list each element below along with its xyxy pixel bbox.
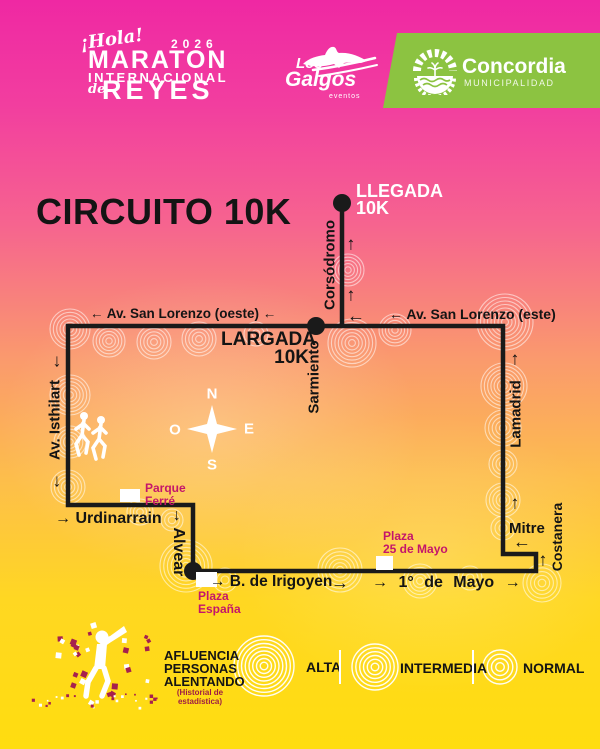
poi-25mayo-line1: Plaza: [383, 530, 448, 543]
poi-square: [120, 489, 140, 502]
direction-arrow: →: [331, 573, 349, 594]
concordia-emblem-icon: [412, 49, 458, 95]
legend-divider-2: [472, 650, 474, 684]
street-san-lorenzo-oeste: ← Av. San Lorenzo (oeste) ←: [90, 306, 276, 321]
legend-subtitle: (Historial de estadística): [164, 688, 236, 706]
street-costanera: Costanera: [549, 503, 565, 571]
concordia-municipalidad-text: MUNICIPALIDAD: [464, 78, 555, 88]
largada-10k-label: 10K: [221, 348, 309, 367]
legend-ripple-normal: [483, 650, 517, 684]
poi-espana-line1: Plaza: [198, 590, 241, 603]
street-alvear: → Alvear: [169, 508, 187, 577]
direction-arrow: ↓: [53, 471, 62, 492]
street-urdinarrain: → Urdinarrain: [55, 510, 162, 528]
direction-arrow: ←: [513, 532, 531, 553]
compass-n: N: [207, 386, 218, 403]
route-dot: [333, 194, 351, 212]
compass-e: E: [244, 421, 254, 438]
legend-label-normal: NORMAL: [523, 660, 584, 676]
crowd-ripple: [137, 325, 171, 359]
poi-plaza-25-mayo: Plaza 25 de Mayo: [383, 530, 448, 556]
direction-arrow: ↑: [347, 285, 356, 306]
llegada-10k-label: 10K: [356, 199, 389, 217]
direction-arrow: ↑: [511, 493, 520, 514]
compass-s: S: [207, 457, 217, 474]
street-isthilart: Av. Isthilart: [47, 380, 64, 460]
crowd-ripple: [93, 325, 125, 357]
poi-parque-line1: Parque: [145, 482, 186, 495]
legend-divider-1: [339, 650, 341, 684]
street-sarmiento: Sarmiento: [306, 340, 323, 413]
poi-plaza-espana: Plaza España: [198, 590, 241, 616]
galgos-eventos-text: eventos: [329, 93, 361, 100]
legend-label-alta: ALTA: [306, 659, 341, 675]
legend-ripple-intermedia: [352, 644, 398, 690]
concordia-name-text: Concordia: [462, 55, 566, 79]
circuit-title: CIRCUITO 10K: [36, 191, 291, 233]
legend-title-line3: ALENTANDO: [164, 675, 245, 688]
runners-icon: [72, 410, 132, 470]
direction-arrow: ↑: [539, 550, 548, 571]
direction-arrow: ↓: [53, 351, 62, 372]
legend-title: AFLUENCIA PERSONAS ALENTANDO (Historial …: [164, 649, 245, 706]
street-san-lorenzo-este: ← Av. San Lorenzo (este): [389, 306, 556, 322]
poi-square: [376, 556, 393, 570]
direction-arrow: ↑: [347, 234, 356, 255]
galgos-name-text: Galgos: [285, 68, 356, 92]
direction-arrow: ←: [347, 306, 365, 327]
poi-espana-line2: España: [198, 603, 241, 616]
poi-parque-ferre: Parque Ferré: [145, 482, 186, 508]
street-lamadrid: Lamadrid: [508, 380, 525, 448]
legend-label-intermedia: INTERMEDIA: [400, 660, 487, 676]
compass-o: O: [169, 422, 181, 439]
street-corsodromo: Corsódromo: [322, 220, 339, 310]
street-1-de-mayo: → 1° de Mayo →: [372, 574, 521, 592]
poster-background: ¡Hola! 2026 MARATON INTERNACIONAL de REY…: [0, 0, 600, 749]
poi-parque-line2: Ferré: [145, 495, 186, 508]
poi-25mayo-line2: 25 de Mayo: [383, 543, 448, 556]
reyes-title: REYES: [102, 75, 214, 106]
direction-arrow: ↑: [511, 349, 520, 370]
